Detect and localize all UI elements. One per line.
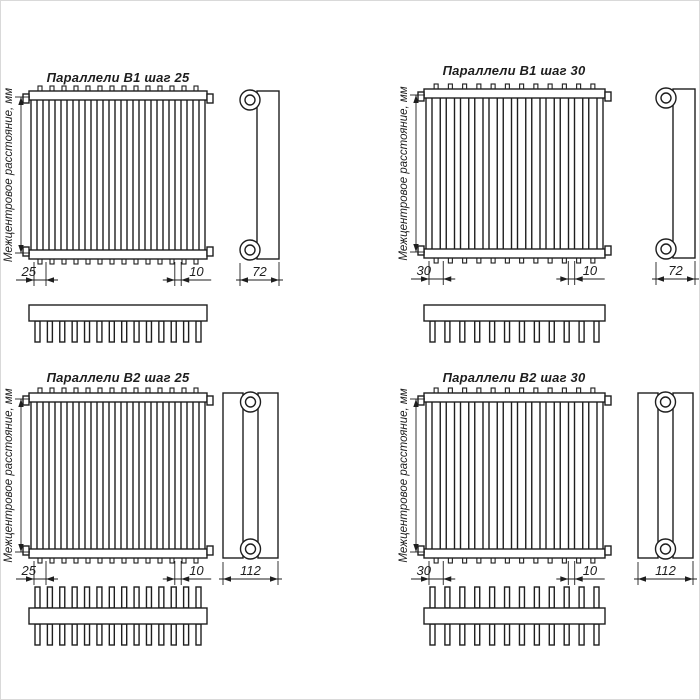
depth-dimension-label: 112 <box>240 563 261 578</box>
diagram-b2-step25: Межцентровое расстояние, мм2510112 <box>3 388 282 645</box>
side-view <box>638 392 693 559</box>
depth-dimension: 72 <box>652 261 699 285</box>
tube-width-dimension: 10 <box>163 561 211 585</box>
pitch-dimension: 30 <box>411 261 455 285</box>
depth-dimension-label: 72 <box>668 263 683 278</box>
top-view <box>29 587 207 645</box>
side-view <box>240 90 279 260</box>
front-view <box>23 388 213 563</box>
tube-width-dimension-label: 10 <box>189 563 204 578</box>
tube-width-dimension-label: 10 <box>583 263 598 278</box>
pitch-dimension-label: 25 <box>21 563 37 578</box>
center-distance-axis-label: Межцентровое расстояние, мм <box>3 88 15 262</box>
center-distance-dimension: Межцентровое расстояние, мм <box>398 86 425 260</box>
side-view <box>223 392 278 559</box>
pitch-dimension-label: 30 <box>417 563 432 578</box>
diagram-b1-step25: Межцентровое расстояние, мм251072 <box>3 86 283 342</box>
center-distance-dimension: Межцентровое расстояние, мм <box>398 388 425 562</box>
center-distance-dimension: Межцентровое расстояние, мм <box>3 88 30 262</box>
center-distance-axis-label: Межцентровое расстояние, мм <box>398 86 410 260</box>
depth-dimension: 112 <box>634 561 697 585</box>
center-distance-axis-label: Межцентровое расстояние, мм <box>398 388 410 562</box>
top-view <box>424 305 605 342</box>
top-view <box>424 587 605 645</box>
radiator-drawing-canvas: Межцентровое расстояние, мм251072Межцент… <box>1 1 700 700</box>
tube-width-dimension: 10 <box>163 262 211 286</box>
front-view <box>418 388 611 563</box>
depth-dimension-label: 72 <box>252 264 267 279</box>
technical-drawing-sheet: Параллели В1 шаг 25 Параллели В1 шаг 30 … <box>0 0 700 700</box>
pitch-dimension: 30 <box>411 561 455 585</box>
tube-width-dimension: 10 <box>556 561 604 585</box>
pitch-dimension-label: 25 <box>21 264 37 279</box>
pitch-dimension-label: 30 <box>417 263 432 278</box>
pitch-dimension: 25 <box>16 561 58 585</box>
tube-width-dimension: 10 <box>556 261 604 285</box>
diagram-b1-step30: Межцентровое расстояние, мм301072 <box>398 84 699 342</box>
front-view <box>23 86 213 264</box>
tube-width-dimension-label: 10 <box>189 264 204 279</box>
top-view <box>29 305 207 342</box>
depth-dimension-label: 112 <box>655 563 676 578</box>
side-view <box>656 88 695 259</box>
center-distance-axis-label: Межцентровое расстояние, мм <box>3 388 15 562</box>
depth-dimension: 72 <box>236 262 283 286</box>
pitch-dimension: 25 <box>16 262 58 286</box>
diagram-b2-step30: Межцентровое расстояние, мм3010112 <box>398 388 697 645</box>
front-view <box>418 84 611 263</box>
tube-width-dimension-label: 10 <box>583 563 598 578</box>
depth-dimension: 112 <box>219 561 282 585</box>
center-distance-dimension: Межцентровое расстояние, мм <box>3 388 30 562</box>
